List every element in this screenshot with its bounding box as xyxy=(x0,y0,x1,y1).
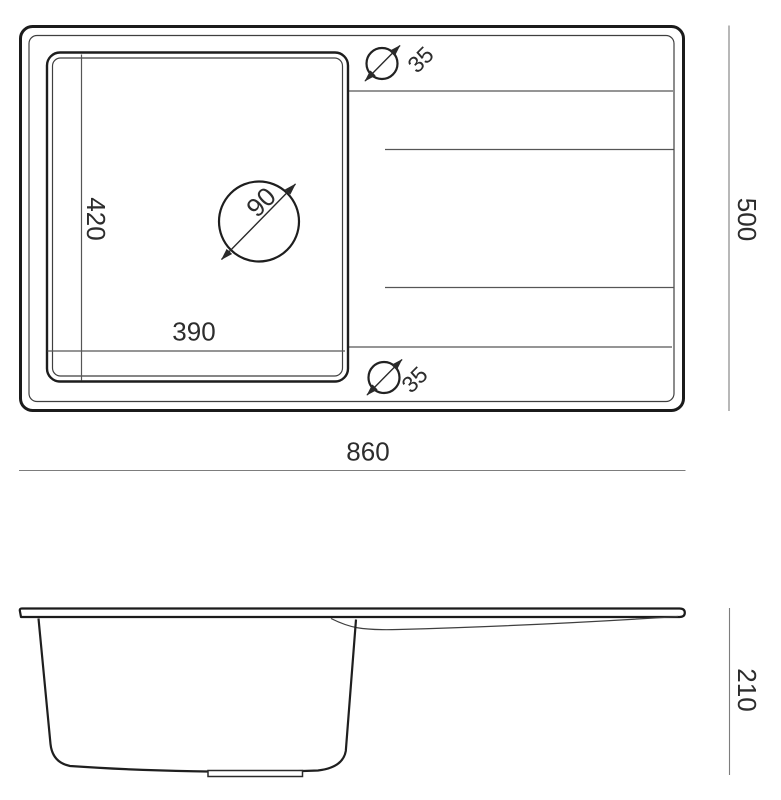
side-drainboard-slope xyxy=(331,617,678,630)
overall-width-label: 860 xyxy=(346,437,389,467)
basin-depth-label: 420 xyxy=(81,197,111,240)
technical-drawing-canvas: 420 390 90 35 35 500 860 xyxy=(0,0,781,800)
side-view: 210 xyxy=(20,608,762,777)
side-rim-profile xyxy=(20,609,685,618)
overall-depth-label: 500 xyxy=(732,198,762,241)
top-view: 420 390 90 35 35 500 860 xyxy=(19,26,762,471)
basin-width-label: 390 xyxy=(172,317,215,347)
side-drain-boss xyxy=(208,771,303,777)
overall-height-label: 210 xyxy=(732,668,762,711)
drawing-page: 420 390 90 35 35 500 860 xyxy=(0,0,781,800)
side-basin-profile xyxy=(39,619,357,772)
